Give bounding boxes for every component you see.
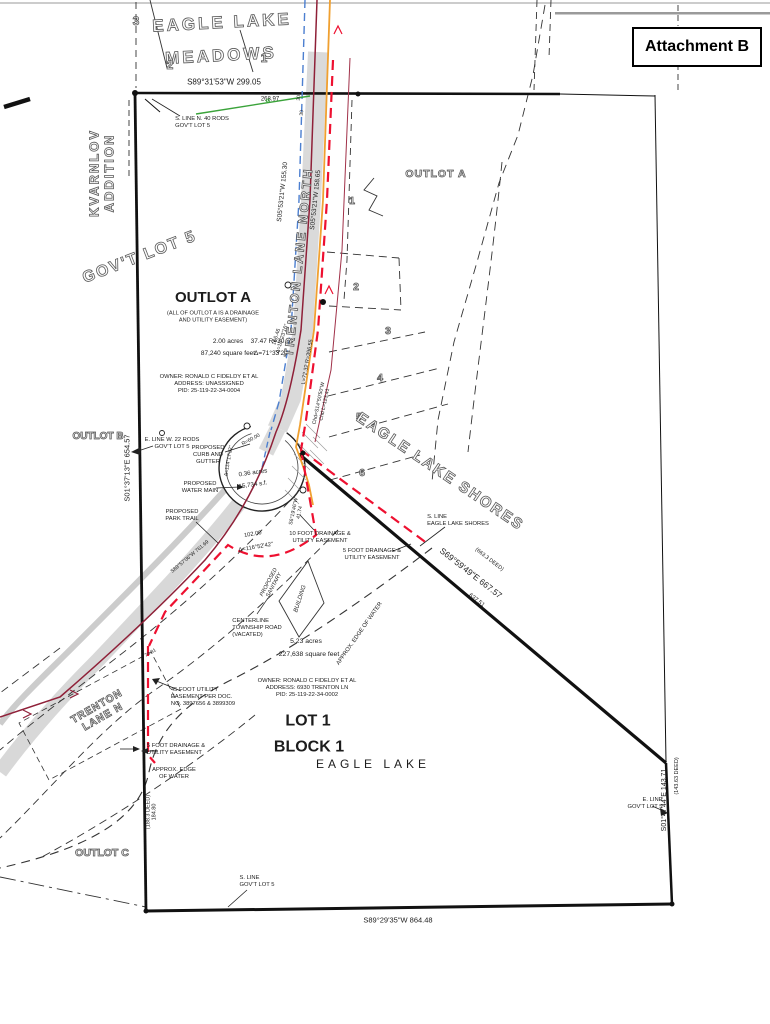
lot1-square-feet: 227,638 square feet — [279, 651, 339, 659]
west-boundary-bearing: S01°37'13"E 654.57 — [124, 434, 133, 501]
proposed-park-trail-note: PROPOSED PARK TRAIL — [165, 509, 198, 523]
shores-lot-number-4: 4 — [377, 372, 383, 384]
proposed-curb-gutter-note: PROPOSED CURB AND GUTTER — [192, 445, 225, 465]
easement-10ft-note: 10 FOOT DRAINAGE & UTILITY EASEMENT — [289, 531, 350, 545]
east-deed-distance: (143.63 DEED) — [674, 757, 680, 794]
north-boundary-bearing: S89°31'53"W 299.05 — [187, 77, 261, 86]
right-of-way-30-a: 30 — [297, 95, 303, 101]
easement-45ft-note: 45 FOOT UTILITY EASEMENT PER DOC. NO. 38… — [171, 687, 235, 707]
lot1-label: LOT 1 — [285, 713, 330, 732]
centerline-line — [0, 0, 317, 717]
plat-survey-page: Attachment B EAGLE LAKE MEADOWS 3 2 1 S8… — [0, 0, 770, 1024]
easement-5ft-left-note: 5 FOOT DRAINAGE & UTILITY EASEMENT — [147, 743, 205, 757]
outlot-a-owner-block: OWNER: RONALD C FIDELDY ET AL ADDRESS: U… — [160, 374, 259, 394]
road-bands — [0, 52, 318, 772]
edge-of-water-left-note: APPROX. EDGE OF WATER — [152, 767, 196, 781]
block1-label: BLOCK 1 — [274, 739, 344, 758]
lot1-owner-block: OWNER: RONALD C FIDELDY ET AL ADDRESS: 6… — [258, 678, 357, 698]
s-line-shores-note: S. LINE EAGLE LAKE SHORES — [427, 514, 489, 528]
outlot-b-name: OUTLOT B — [72, 431, 123, 443]
shores-lot-number-1: 1 — [349, 195, 355, 207]
meadows-lot-number-2: 2 — [167, 58, 174, 72]
attachment-b-box: Attachment B — [632, 27, 762, 67]
right-of-way-30-b: 30 — [300, 110, 306, 116]
outlot-a-right-name: OUTLOT A — [405, 168, 466, 180]
lot1-acreage: 5.23 acres — [290, 638, 322, 646]
outlot-c-name: OUTLOT C — [75, 847, 129, 859]
s-line-govt5-note: S. LINE GOV'T LOT 5 — [239, 875, 274, 889]
outlot-a-easement-note: (ALL OF OUTLOT A IS A DRAINAGE AND UTILI… — [167, 310, 259, 323]
south-boundary-bearing: S89°29'35"W 864.48 — [363, 917, 432, 926]
outlot-a-acreage: 2.00 acres — [213, 338, 243, 346]
meadows-lot-number-1: 1 — [261, 51, 268, 65]
leader-lines — [120, 99, 666, 907]
e-line-govt5-note: E. LINE GOV'T LOT 5 — [627, 797, 662, 811]
outlot-a-title: OUTLOT A — [175, 289, 251, 307]
kvarnlov-addition-name: KVARNLOV ADDITION — [87, 129, 118, 217]
s-line-n40-rods-note: S. LINE N. 40 RODS GOV'T LOT 5 — [175, 116, 229, 130]
outlot-a-square-feet: 87,240 square feet — [201, 350, 255, 358]
eagle-lake-name: EAGLE LAKE — [316, 757, 430, 771]
meadows-lot-number-3: 3 — [133, 14, 140, 28]
proposed-water-main-note: PROPOSED WATER MAIN — [182, 481, 218, 495]
east-boundary-bearing: S01°47'44"E 143.71 — [661, 769, 669, 832]
shores-lot-number-3: 3 — [385, 325, 391, 337]
shores-lot-number-6: 6 — [359, 467, 365, 479]
green-direction-arrows: « — [264, 95, 271, 107]
centerline-township-road-note: CENTERLINE TOWNSHIP ROAD (VACATED) — [232, 618, 281, 638]
west-deed-distance: (188.3 DEED) 184.80 — [146, 795, 159, 829]
attachment-b-label: Attachment B — [645, 38, 749, 56]
easement-5ft-right-note: 5 FOOT DRAINAGE & UTILITY EASEMENT — [343, 548, 401, 562]
shores-lot-number-2: 2 — [353, 281, 359, 293]
green-survey-line — [196, 96, 310, 114]
